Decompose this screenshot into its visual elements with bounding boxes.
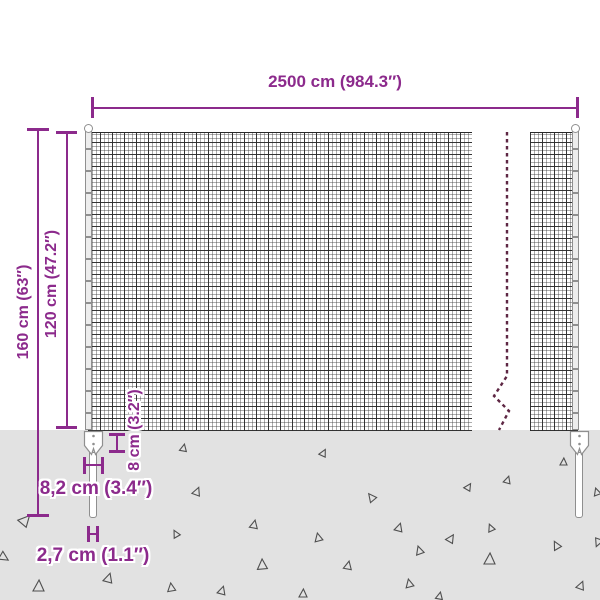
fence-mesh-main xyxy=(88,132,472,431)
anchor-plate-left xyxy=(83,430,104,458)
dim-total-height-cap-top xyxy=(27,128,49,131)
dim-total-width-line xyxy=(92,107,578,109)
dim-anchor-width-cap-right xyxy=(101,457,104,474)
dim-total-width-cap-right xyxy=(576,97,579,118)
fence-post-left xyxy=(85,127,92,430)
dim-anchor-height-cap-bottom xyxy=(109,450,125,453)
dim-anchor-width-label: 8,2 cm (3.4″) xyxy=(40,478,153,500)
ground-spike-right xyxy=(575,452,583,518)
dim-total-width-cap-left xyxy=(91,97,94,118)
anchor-plate-right xyxy=(569,430,590,458)
dim-anchor-height-cap-top xyxy=(109,433,125,436)
dim-mesh-height-cap-bottom xyxy=(56,426,77,429)
diagram-canvas: 2500 cm (984.3″) 160 cm (63″) 120 cm (47… xyxy=(0,0,600,600)
dim-mesh-height-label: 120 cm (47.2″) xyxy=(43,230,61,338)
dim-spike-width-cap-left xyxy=(87,526,90,542)
fence-mesh-right xyxy=(530,132,578,431)
dim-total-height-line xyxy=(37,129,39,515)
dim-spike-width-cap-right xyxy=(96,526,99,542)
fence-post-left-cap xyxy=(84,124,93,133)
dim-mesh-height-line xyxy=(66,132,68,428)
dim-total-height-label: 160 cm (63″) xyxy=(15,265,33,360)
dim-mesh-height-cap-top xyxy=(56,131,77,134)
dim-total-height-cap-bottom xyxy=(27,514,49,517)
dim-anchor-height-label: 8 cm (3.2″) xyxy=(126,389,144,470)
fence-post-right xyxy=(572,127,579,430)
dim-total-width-label: 2500 cm (984.3″) xyxy=(268,72,402,92)
fence-post-right-cap xyxy=(571,124,580,133)
dim-anchor-width-cap-left xyxy=(83,457,86,474)
dim-spike-width-label: 2,7 cm (1.1″) xyxy=(37,545,150,567)
